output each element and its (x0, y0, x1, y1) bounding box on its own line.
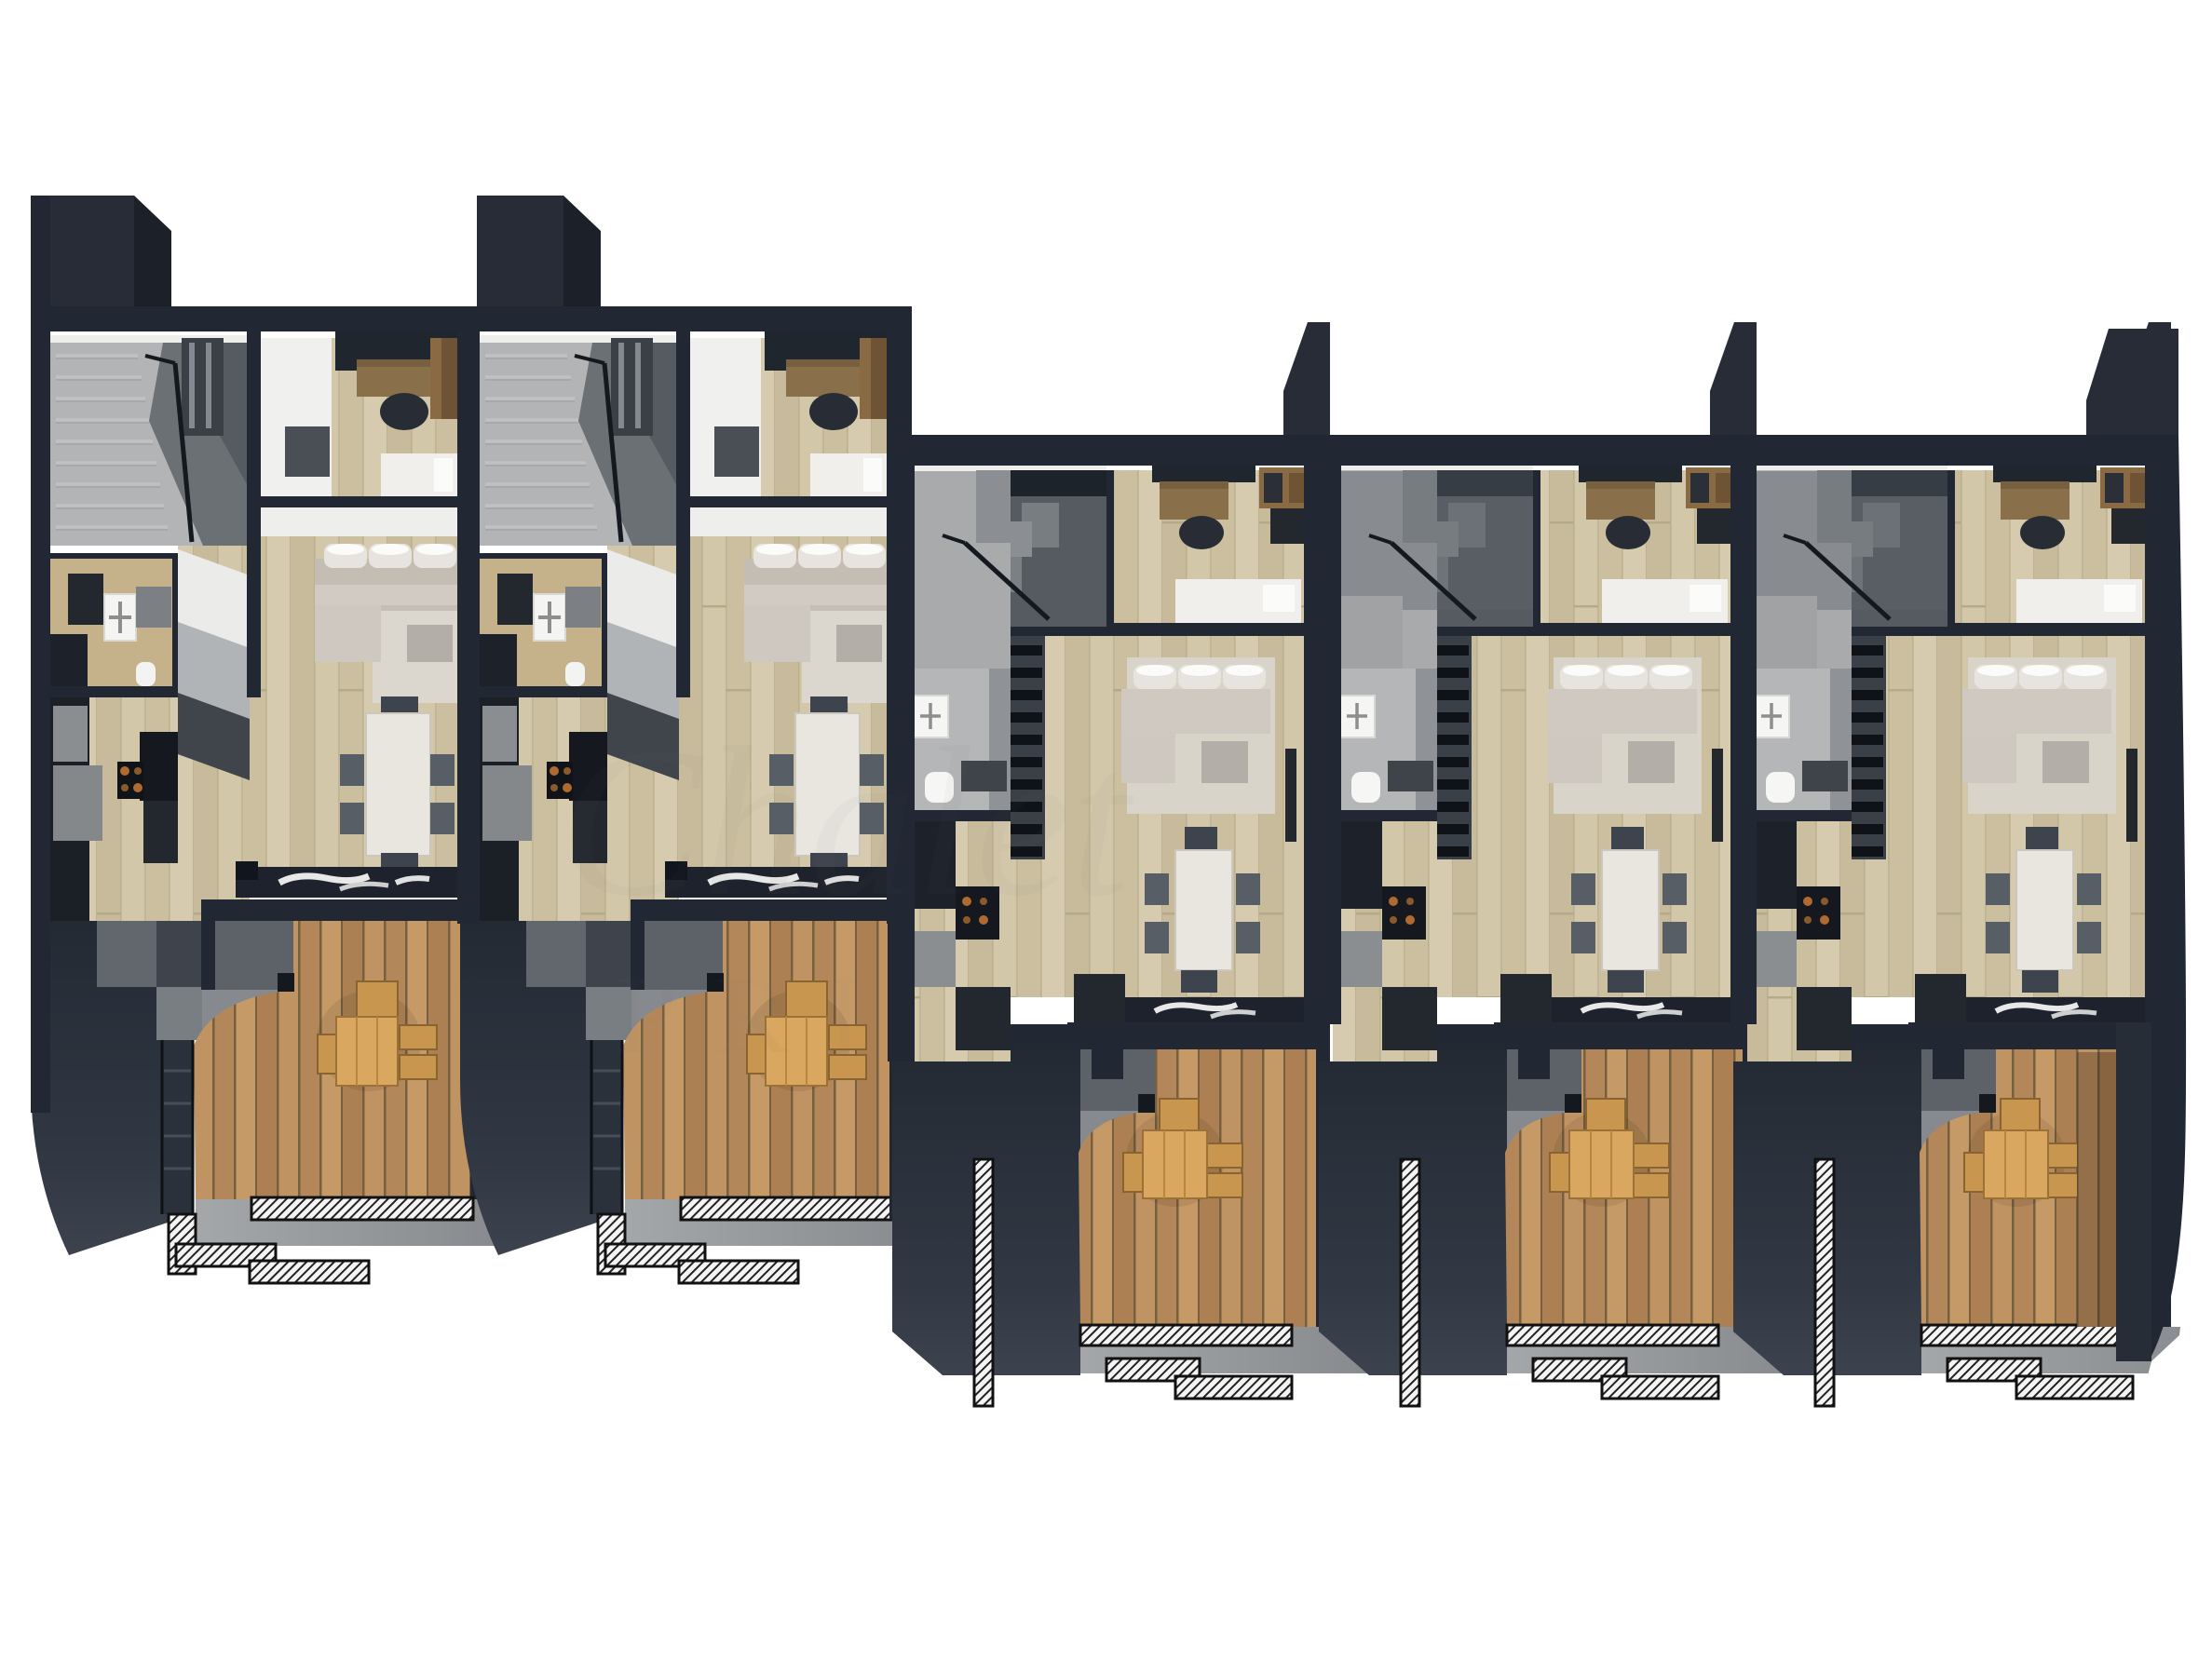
svg-text:PRI: PRI (615, 953, 901, 1076)
svg-text:Chalet: Chalet (559, 703, 1134, 940)
